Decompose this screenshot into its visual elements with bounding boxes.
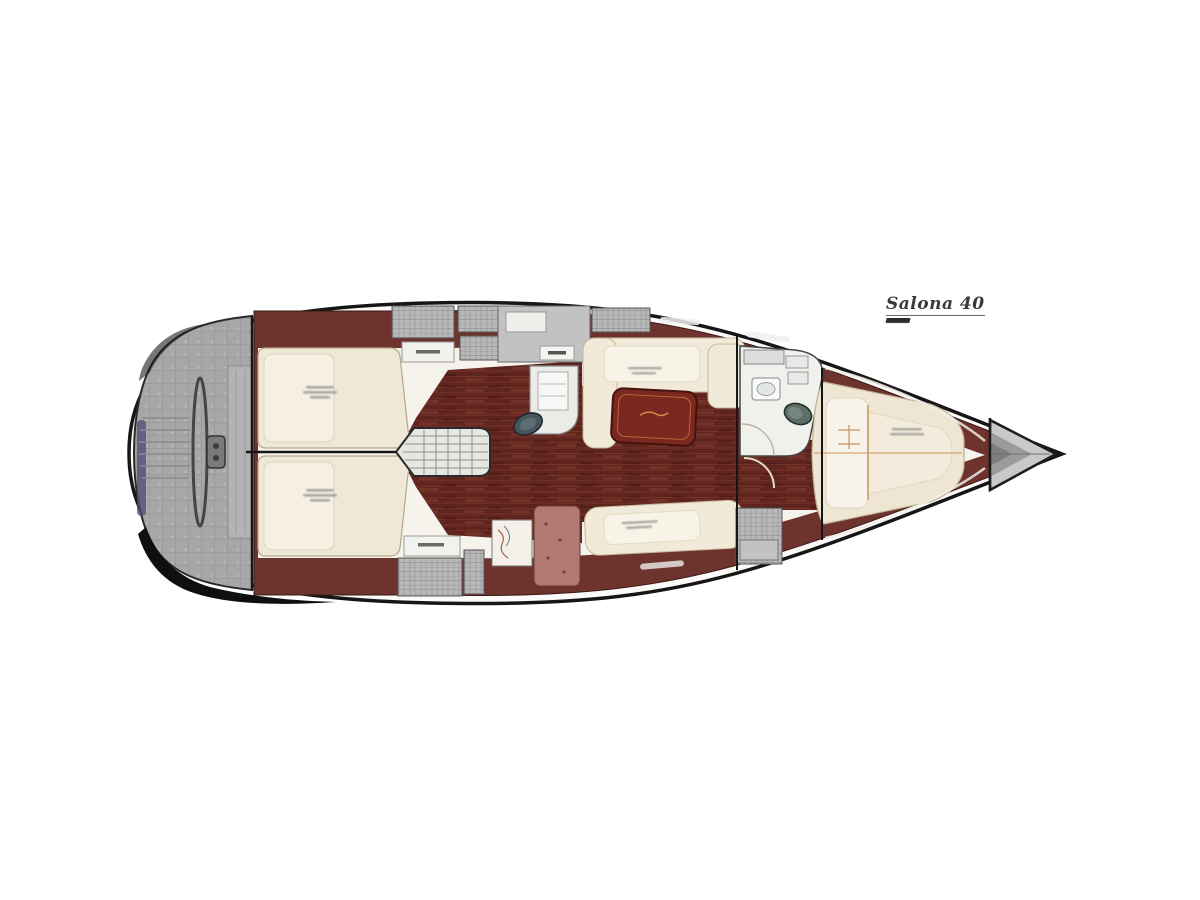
deck-lockers-forward: [736, 508, 782, 564]
aft-cabin-port: [258, 348, 409, 448]
stern-navy-accent: [137, 420, 146, 516]
bow-anchor-locker: [990, 418, 1056, 491]
deck-locker: [392, 306, 454, 338]
builder-logo-mark: [885, 318, 910, 323]
settee-cushion: [604, 346, 700, 382]
head-cabinet: [744, 350, 784, 364]
nav-desk: [534, 506, 580, 586]
deck-locker: [592, 308, 650, 332]
settee-cushion: [603, 510, 700, 545]
aft-cabin-starboard: [258, 456, 409, 556]
boat-plan-svg: [0, 0, 1200, 900]
boat-layout-figure: Salona 40: [0, 0, 1200, 900]
chart-table: [492, 520, 532, 566]
title-block: Salona 40: [886, 294, 1026, 323]
berth-cushion: [264, 462, 334, 550]
stove-icon: [538, 372, 568, 410]
deck-locker: [464, 550, 484, 594]
boat-model-title: Salona 40: [886, 294, 985, 316]
steering-pedestal: [207, 436, 225, 468]
salon-table: [611, 388, 698, 446]
deck-locker: [398, 558, 462, 596]
head-compartment: [740, 346, 822, 456]
salon-settee: [584, 500, 744, 556]
companionway-steps: [396, 428, 490, 476]
